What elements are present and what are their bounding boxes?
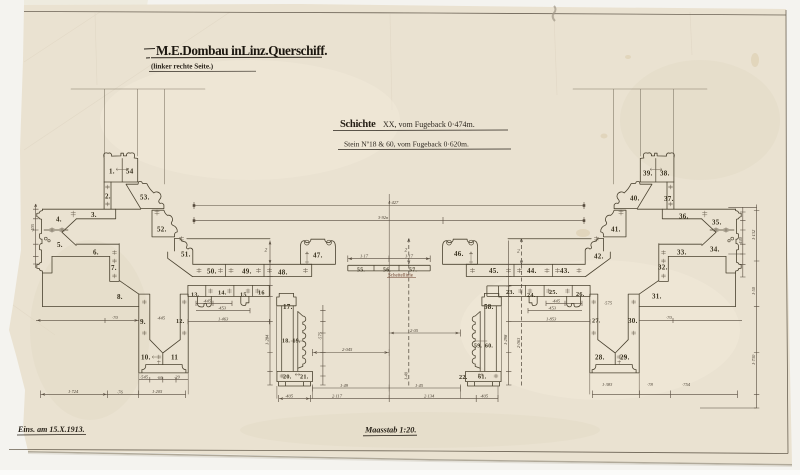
svg-text:22.: 22. [459, 374, 468, 381]
svg-text:44.: 44. [527, 267, 537, 275]
svg-text:1·730: 1·730 [751, 354, 756, 365]
svg-text:18.: 18. [282, 339, 290, 345]
svg-text:49.: 49. [242, 268, 252, 276]
svg-text:34.: 34. [710, 246, 720, 254]
svg-text:1·853: 1·853 [546, 317, 557, 322]
svg-text:20.: 20. [283, 374, 292, 381]
svg-text:35.: 35. [712, 219, 722, 227]
svg-text:59.: 59. [474, 344, 482, 350]
svg-text:11: 11 [171, 354, 178, 362]
svg-text:·405: ·405 [480, 393, 489, 398]
svg-text:45.: 45. [489, 267, 499, 275]
svg-text:Maasstab 1:20.: Maasstab 1:20. [364, 426, 416, 435]
svg-text:30.: 30. [628, 317, 638, 325]
svg-text:51.: 51. [181, 251, 191, 259]
svg-text:25.: 25. [549, 289, 558, 296]
svg-text:10.: 10. [141, 354, 151, 362]
svg-text:57.: 57. [409, 268, 417, 274]
svg-text:·70: ·70 [112, 315, 118, 320]
svg-text:XX, vom Fugeback 0·474m.: XX, vom Fugeback 0·474m. [383, 120, 475, 129]
svg-text:26.: 26. [576, 291, 585, 298]
svg-text:36.: 36. [679, 213, 689, 221]
svg-text:·78: ·78 [647, 382, 653, 387]
svg-text:2: 2 [405, 248, 408, 254]
svg-text:1·45: 1·45 [415, 383, 424, 388]
svg-text:·754: ·754 [682, 382, 691, 387]
svg-text:48.: 48. [278, 269, 288, 277]
svg-text:1·40: 1·40 [404, 371, 409, 380]
svg-text:14.: 14. [218, 290, 227, 297]
svg-text:1·724: 1·724 [68, 389, 79, 394]
svg-text:2·05: 2·05 [410, 328, 419, 333]
svg-text:28.: 28. [595, 354, 605, 362]
svg-text:31.: 31. [652, 293, 662, 301]
svg-text:55.: 55. [357, 268, 365, 274]
svg-text:32.: 32. [658, 264, 668, 272]
svg-text:·575: ·575 [318, 331, 323, 340]
svg-text:21.: 21. [300, 374, 309, 381]
svg-text:29.: 29. [620, 354, 630, 362]
svg-text:37.: 37. [664, 195, 674, 203]
svg-text:43.: 43. [560, 267, 570, 275]
svg-text:58.: 58. [484, 303, 494, 311]
svg-text:17.: 17. [283, 303, 293, 311]
svg-text:23.: 23. [506, 289, 515, 296]
svg-text:6.: 6. [93, 249, 99, 257]
svg-text:60.: 60. [485, 344, 493, 350]
svg-text:4.: 4. [56, 216, 62, 224]
svg-text:2: 2 [517, 249, 520, 255]
svg-text:1·132: 1·132 [751, 229, 756, 240]
svg-text:1·17: 1·17 [405, 254, 414, 259]
svg-text:2·117: 2·117 [332, 394, 343, 399]
svg-text:·545: ·545 [140, 375, 149, 380]
svg-text:15: 15 [240, 292, 247, 299]
svg-text:M.E.Dombau inLinz.Querschiff.: M.E.Dombau inLinz.Querschiff. [156, 43, 327, 58]
svg-text:54: 54 [126, 168, 134, 176]
svg-text:1·298: 1·298 [503, 334, 508, 345]
svg-text:2·045: 2·045 [342, 347, 353, 352]
svg-text:47.: 47. [313, 252, 323, 260]
svg-text:Eins. am 15.X.1913.: Eins. am 15.X.1913. [17, 425, 85, 434]
svg-text:56.: 56. [383, 268, 391, 274]
svg-text:13.: 13. [191, 292, 200, 299]
svg-text:·66: ·66 [157, 375, 163, 380]
svg-text:1·49: 1·49 [340, 383, 349, 388]
svg-text:1·284: 1·284 [264, 334, 269, 345]
svg-text:39.: 39. [643, 170, 653, 178]
svg-text:Stein Nº18 & 60, vom Fugeback: Stein Nº18 & 60, vom Fugeback 0·620m. [344, 140, 469, 149]
svg-text:42.: 42. [594, 253, 604, 261]
svg-text:·575: ·575 [604, 301, 613, 306]
svg-text:·453: ·453 [218, 306, 227, 311]
svg-text:·445: ·445 [552, 298, 561, 303]
svg-text:1·383: 1·383 [602, 382, 613, 387]
svg-text:7.: 7. [111, 264, 117, 272]
svg-text:41.: 41. [611, 226, 621, 234]
svg-text:2·134: 2·134 [424, 394, 435, 399]
svg-text:·440: ·440 [738, 236, 743, 245]
svg-text:5.: 5. [57, 241, 63, 249]
svg-text:·405: ·405 [285, 393, 294, 398]
svg-text:·29: ·29 [174, 375, 180, 380]
svg-text:2: 2 [265, 248, 268, 254]
svg-text:(linker rechte Seite.): (linker rechte Seite.) [151, 63, 214, 71]
svg-text:8.: 8. [117, 293, 123, 301]
svg-text:16: 16 [258, 290, 265, 297]
svg-text:1·463: 1·463 [218, 317, 229, 322]
svg-text:1·50: 1·50 [751, 286, 756, 295]
svg-text:38.: 38. [660, 170, 670, 178]
svg-text:27.: 27. [592, 318, 601, 325]
svg-text:33.: 33. [677, 249, 687, 257]
svg-text:24.: 24. [527, 292, 536, 299]
svg-text:·70: ·70 [666, 315, 672, 320]
svg-text:·445: ·445 [157, 316, 166, 321]
svg-text:Schichte: Schichte [340, 119, 376, 130]
svg-text:·453: ·453 [548, 306, 557, 311]
svg-text:3.: 3. [91, 211, 97, 219]
svg-text:9.: 9. [140, 318, 146, 326]
svg-text:4·427: 4·427 [388, 200, 399, 205]
svg-text:1.: 1. [109, 168, 115, 176]
svg-text:2·063: 2·063 [516, 337, 521, 348]
svg-text:1·205: 1·205 [152, 389, 163, 394]
svg-text:3·92n: 3·92n [378, 215, 389, 220]
svg-text:46.: 46. [454, 250, 464, 258]
svg-text:·405: ·405 [30, 223, 35, 232]
svg-text:·76: ·76 [117, 389, 123, 394]
svg-text:53.: 53. [140, 194, 150, 202]
svg-text:19.: 19. [293, 339, 301, 345]
svg-text:1·17: 1·17 [360, 254, 369, 259]
svg-text:·445: ·445 [203, 298, 212, 303]
svg-text:2.: 2. [105, 193, 111, 201]
svg-text:50.: 50. [207, 268, 217, 276]
svg-text:52.: 52. [157, 226, 167, 234]
svg-text:61.: 61. [478, 374, 487, 381]
svg-text:12.: 12. [176, 318, 185, 325]
svg-text:40.: 40. [630, 195, 640, 203]
